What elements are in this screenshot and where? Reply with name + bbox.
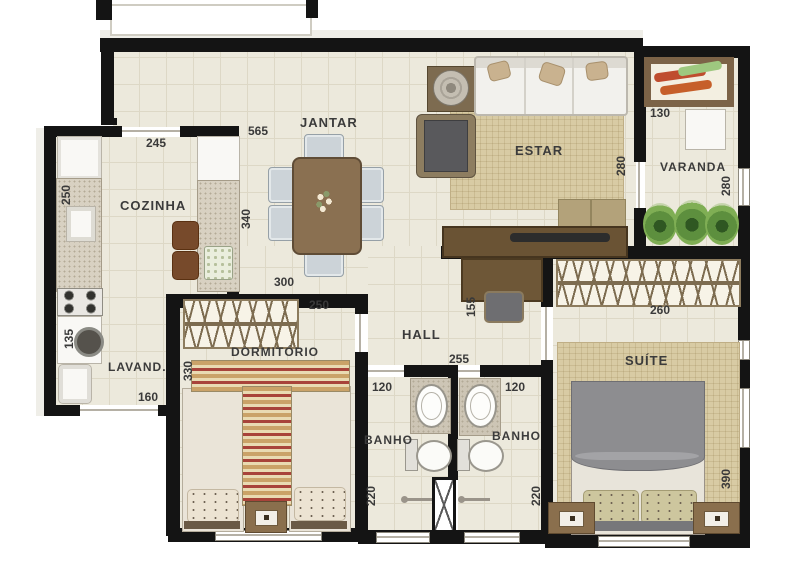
dim-banho2-width: 120 bbox=[505, 380, 525, 394]
side-table-tray bbox=[433, 70, 469, 106]
bath2-toilet bbox=[468, 440, 504, 472]
wall-laundry-bedroom bbox=[166, 294, 180, 536]
suite-nightstand bbox=[693, 502, 740, 534]
dim-banho1-width: 120 bbox=[372, 380, 392, 394]
desk-chair bbox=[484, 291, 524, 323]
balcony-glass-door bbox=[636, 162, 645, 208]
wall-laundry-bottom-a bbox=[44, 405, 80, 416]
nightstand bbox=[245, 501, 287, 533]
dim-cozinha-width: 245 bbox=[146, 136, 166, 150]
plant bbox=[643, 203, 677, 245]
label-suite: SUÍTE bbox=[625, 353, 668, 368]
armchair-seat bbox=[424, 120, 468, 172]
label-jantar: JANTAR bbox=[300, 115, 358, 130]
tv bbox=[510, 233, 610, 242]
dim-banho1-depth: 220 bbox=[364, 476, 378, 516]
label-estar: ESTAR bbox=[515, 143, 563, 158]
dim-cozinha-depth: 250 bbox=[59, 175, 73, 215]
wall-bedroom-right-a bbox=[355, 294, 368, 314]
dim-suite-width: 260 bbox=[650, 303, 670, 317]
bath2-shower-arm bbox=[462, 498, 490, 501]
building-corridor-outline bbox=[110, 4, 312, 36]
bath1-shower-arm bbox=[405, 498, 433, 501]
bath1-door-opening bbox=[368, 367, 404, 376]
label-dormitorio: DORMITÓRIO bbox=[231, 345, 319, 359]
dim-hall-width: 255 bbox=[449, 352, 469, 366]
label-banho-1: BANHO bbox=[364, 433, 413, 447]
stove bbox=[57, 288, 103, 316]
varanda-window bbox=[738, 168, 750, 206]
dim-dormitorio-depth: 330 bbox=[181, 351, 195, 391]
basin-inner bbox=[470, 392, 491, 420]
bath1-washbasin bbox=[415, 384, 448, 428]
label-hall: HALL bbox=[402, 327, 441, 342]
wall-bath1-top bbox=[404, 365, 448, 377]
bath1-toilet bbox=[416, 440, 452, 472]
nightstand-knob bbox=[570, 516, 575, 521]
floor-plan: COZINHA JANTAR ESTAR VARANDA LAVAND. DOR… bbox=[0, 0, 800, 576]
label-varanda: VARANDA bbox=[660, 160, 726, 174]
dim-lavanderia-depth: 135 bbox=[62, 319, 76, 359]
label-banho-2: BANHO bbox=[492, 429, 541, 443]
air-shaft bbox=[432, 477, 456, 533]
dim-jantar-depth: 340 bbox=[239, 199, 253, 239]
living-rug bbox=[450, 108, 624, 210]
dim-hall-nook: 155 bbox=[464, 287, 478, 327]
sofa-pillow bbox=[585, 61, 609, 82]
counter-cabinet bbox=[197, 136, 240, 182]
dim-varanda-depth: 280 bbox=[719, 166, 733, 206]
suite-pillow bbox=[641, 490, 697, 524]
wall-top-main bbox=[100, 38, 643, 52]
label-cozinha: COZINHA bbox=[120, 198, 186, 213]
outer-shadow bbox=[36, 128, 44, 416]
wall-dining-left-cap bbox=[101, 118, 117, 125]
dim-jantar-opening: 300 bbox=[274, 275, 294, 289]
bath1-window bbox=[376, 532, 430, 543]
wall-dining-left bbox=[101, 38, 114, 122]
laundry-door-opening bbox=[80, 406, 158, 416]
suite-nightstand bbox=[548, 502, 595, 534]
laundry-tub bbox=[58, 364, 92, 404]
bed-pillow bbox=[294, 487, 346, 521]
wall-stub-top-right bbox=[306, 0, 318, 18]
balcony-table bbox=[685, 109, 726, 150]
dim-jantar-width: 565 bbox=[248, 124, 268, 138]
suite-door-opening bbox=[543, 307, 552, 360]
bath2-door-opening bbox=[458, 367, 480, 376]
bar-sink bbox=[204, 246, 233, 280]
bedroom-door-opening bbox=[357, 314, 366, 352]
bath2-washbasin bbox=[464, 384, 497, 428]
duvet-fold bbox=[575, 452, 699, 460]
bed-pillow bbox=[187, 489, 239, 523]
wall-stub-top-left bbox=[96, 0, 112, 20]
fridge bbox=[57, 136, 102, 180]
suite-wardrobe bbox=[556, 259, 741, 307]
bar-stool bbox=[172, 251, 199, 280]
dim-dormitorio-width: 250 bbox=[309, 298, 329, 312]
label-lavanderia: LAVAND. bbox=[108, 360, 167, 374]
dim-varanda-width: 130 bbox=[650, 106, 670, 120]
nightstand-knob bbox=[715, 516, 720, 521]
dim-banho2-depth: 220 bbox=[529, 476, 543, 516]
bath2-window bbox=[464, 532, 520, 543]
bar-stool bbox=[172, 221, 199, 250]
plant bbox=[705, 203, 739, 245]
suite-bottom-window bbox=[598, 536, 690, 547]
bedroom-wardrobe bbox=[183, 299, 299, 349]
table-centerpiece bbox=[312, 188, 336, 218]
dim-suite-depth: 390 bbox=[719, 459, 733, 499]
bed-runner-vertical bbox=[242, 386, 292, 506]
dim-estar-depth: 280 bbox=[614, 146, 628, 186]
washing-machine-door bbox=[74, 327, 104, 357]
wall-kitchen-left bbox=[44, 126, 56, 416]
nightstand-knob bbox=[264, 515, 269, 520]
tv-console bbox=[442, 226, 628, 258]
bed-headboard bbox=[291, 521, 347, 529]
dim-lavanderia-width: 160 bbox=[138, 390, 158, 404]
bed-headboard bbox=[184, 521, 240, 529]
basin-inner bbox=[421, 392, 442, 420]
